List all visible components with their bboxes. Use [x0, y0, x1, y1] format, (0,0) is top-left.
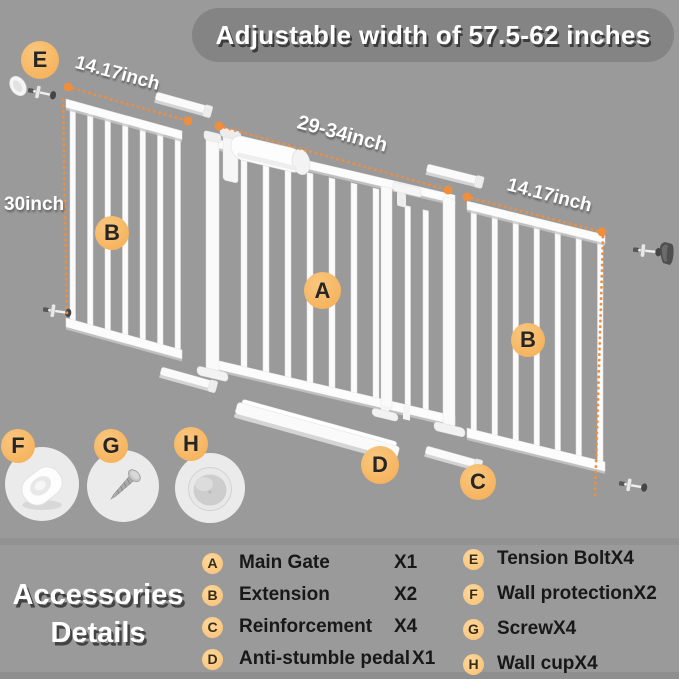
part-label-g: G: [94, 429, 128, 463]
item-name: Main Gate: [239, 552, 392, 574]
list-item: D Anti-stumble pedal X1: [202, 648, 435, 670]
wall-cup-sample: [175, 453, 245, 523]
item-letter-badge: B: [202, 585, 223, 606]
item-name: Anti-stumble pedal: [239, 648, 410, 670]
item-letter-badge: H: [463, 654, 484, 675]
item-letter-badge: E: [463, 549, 484, 570]
item-name: Reinforcement: [239, 616, 392, 638]
product-infographic: Adjustable width of 57.5-62 inches 14.17…: [0, 0, 679, 679]
part-label-c: C: [460, 464, 496, 500]
part-label-a: A: [304, 272, 341, 309]
parts-list-left: A Main Gate X1 B Extension X2 C Reinforc…: [202, 552, 435, 670]
part-label-b-left: B: [95, 216, 129, 250]
list-item: G Screw X4: [463, 618, 657, 640]
door-post: [381, 186, 392, 409]
item-qty: X4: [394, 616, 417, 638]
part-label-e: E: [21, 41, 59, 79]
list-item: F Wall protection X2: [463, 583, 657, 605]
divider-band: [0, 538, 679, 545]
item-name: Wall cup: [497, 653, 574, 675]
item-letter-badge: F: [463, 584, 484, 605]
list-item: B Extension X2: [202, 584, 435, 606]
part-label-f: F: [1, 429, 35, 463]
item-qty: X1: [394, 552, 417, 574]
measure-height: 30inch: [4, 194, 64, 216]
banner-text: Adjustable width of 57.5-62 inches: [216, 20, 651, 51]
parts-list-right: E Tension Bolt X4 F Wall protection X2 G…: [463, 548, 657, 675]
item-name: Tension Bolt: [497, 548, 611, 570]
item-letter-badge: A: [202, 553, 223, 574]
accessories-title: Accessories Details: [0, 576, 196, 653]
part-label-h: H: [174, 427, 208, 461]
item-name: Extension: [239, 584, 392, 606]
list-item: E Tension Bolt X4: [463, 548, 657, 570]
part-label-b-right: B: [511, 323, 545, 357]
part-label-d: D: [361, 446, 399, 484]
item-qty: X1: [412, 648, 435, 670]
list-item: H Wall cup X4: [463, 653, 657, 675]
item-name: Screw: [497, 618, 553, 640]
item-qty: X4: [553, 618, 576, 640]
item-qty: X4: [611, 548, 634, 570]
accessories-title-line1: Accessories: [0, 576, 196, 614]
screw-sample: [87, 450, 159, 522]
item-qty: X2: [634, 583, 657, 605]
item-letter-badge: C: [202, 617, 223, 638]
accessories-title-line2: Details: [0, 614, 196, 652]
item-letter-badge: D: [202, 649, 223, 670]
list-item: C Reinforcement X4: [202, 616, 435, 638]
item-qty: X2: [394, 584, 417, 606]
banner: Adjustable width of 57.5-62 inches: [192, 8, 674, 62]
list-item: A Main Gate X1: [202, 552, 435, 574]
item-name: Wall protection: [497, 583, 634, 605]
item-qty: X4: [574, 653, 597, 675]
item-letter-badge: G: [463, 619, 484, 640]
